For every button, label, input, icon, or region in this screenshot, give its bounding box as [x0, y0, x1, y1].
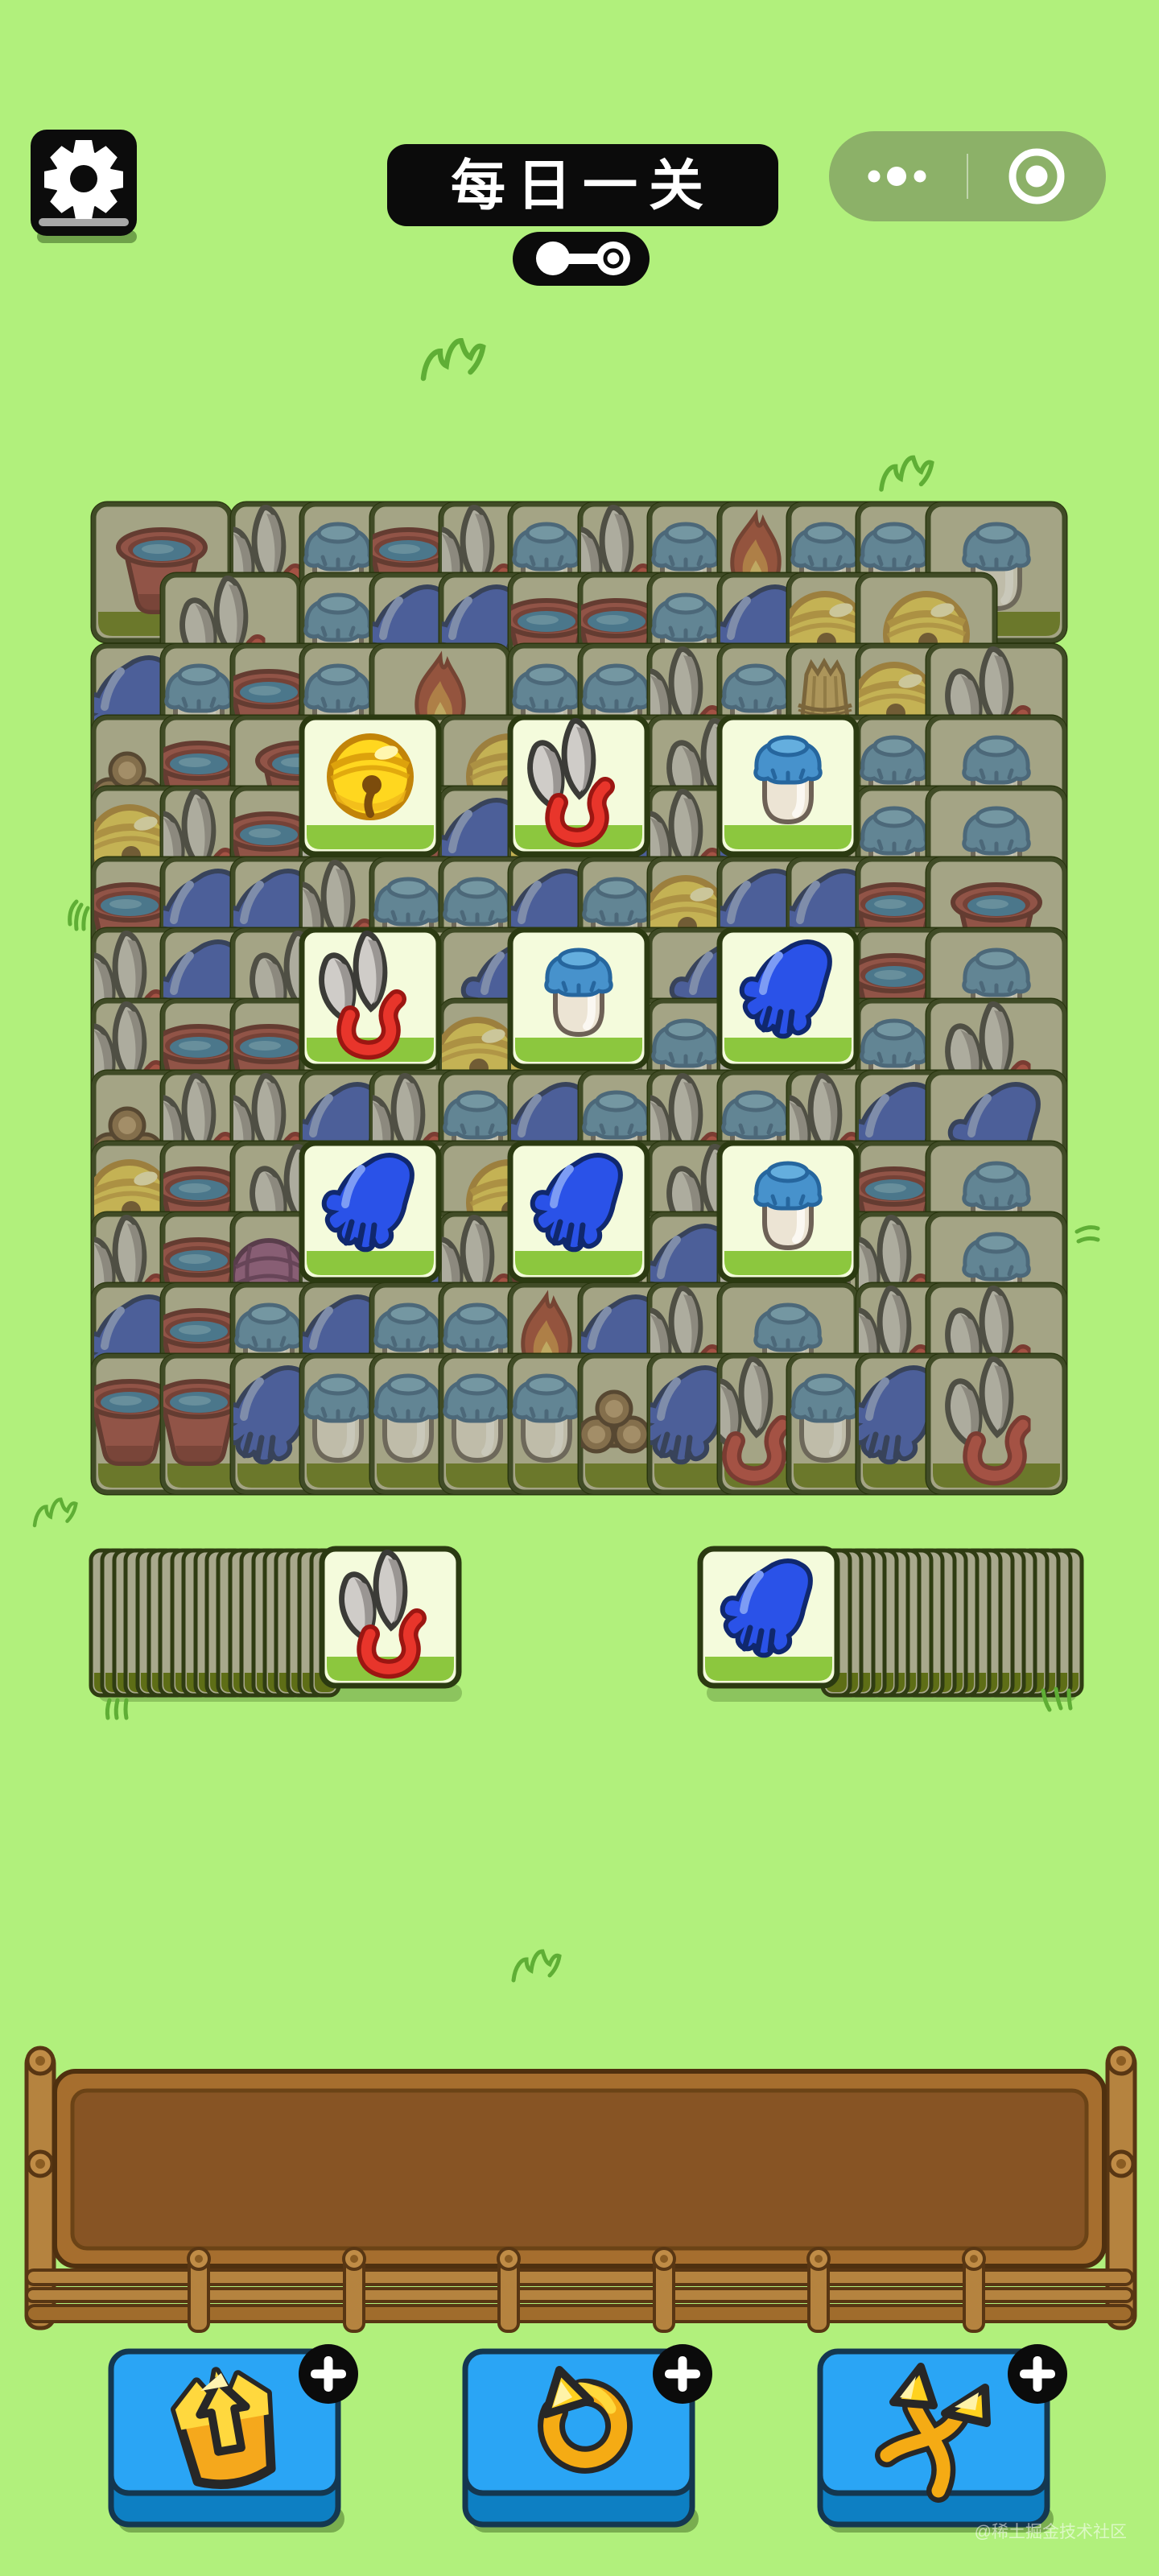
svg-text:@稀土掘金技术社区: @稀土掘金技术社区 — [975, 2523, 1127, 2541]
svg-text:每日一关: 每日一关 — [451, 155, 715, 217]
